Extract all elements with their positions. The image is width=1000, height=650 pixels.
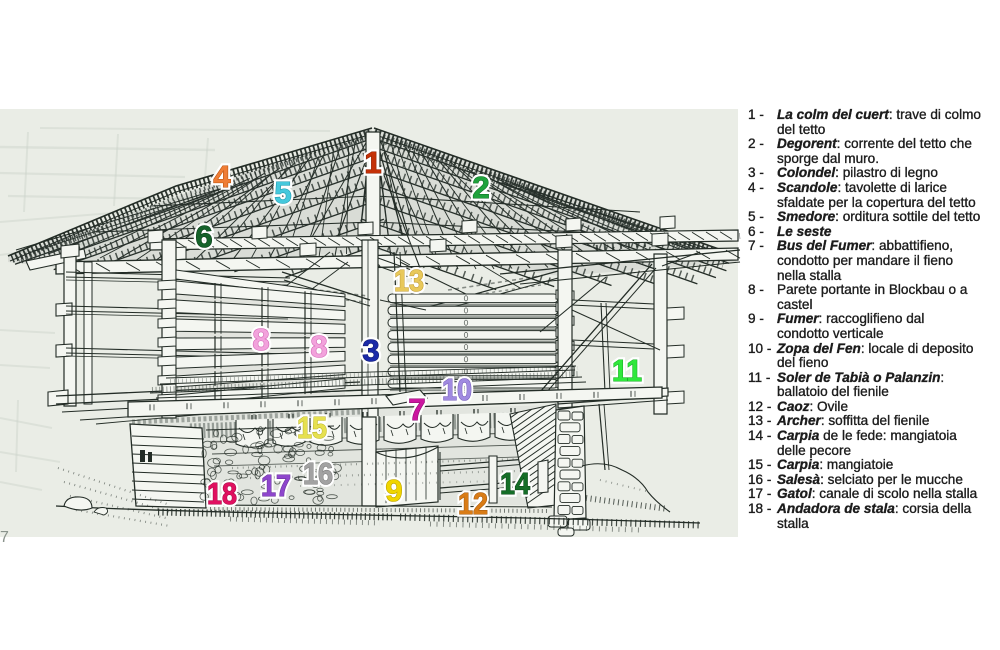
svg-text:5: 5 [274,175,291,210]
svg-text:7: 7 [0,529,9,546]
svg-text:18: 18 [207,476,237,511]
svg-text:13: 13 [394,263,424,298]
svg-text:10: 10 [442,372,472,407]
svg-text:1: 1 [364,145,381,180]
svg-text:15: 15 [297,410,327,445]
svg-text:3: 3 [362,333,379,368]
svg-text:8: 8 [252,322,269,357]
svg-text:7: 7 [408,392,425,427]
svg-text:6: 6 [195,219,212,254]
svg-text:12: 12 [458,486,488,521]
svg-text:2: 2 [472,170,489,205]
svg-text:14: 14 [500,466,531,501]
svg-text:9: 9 [385,473,402,508]
svg-text:4: 4 [213,159,231,194]
svg-text:11: 11 [612,353,642,388]
svg-text:8: 8 [310,329,327,364]
svg-text:17: 17 [261,468,291,503]
svg-text:16: 16 [303,456,333,491]
